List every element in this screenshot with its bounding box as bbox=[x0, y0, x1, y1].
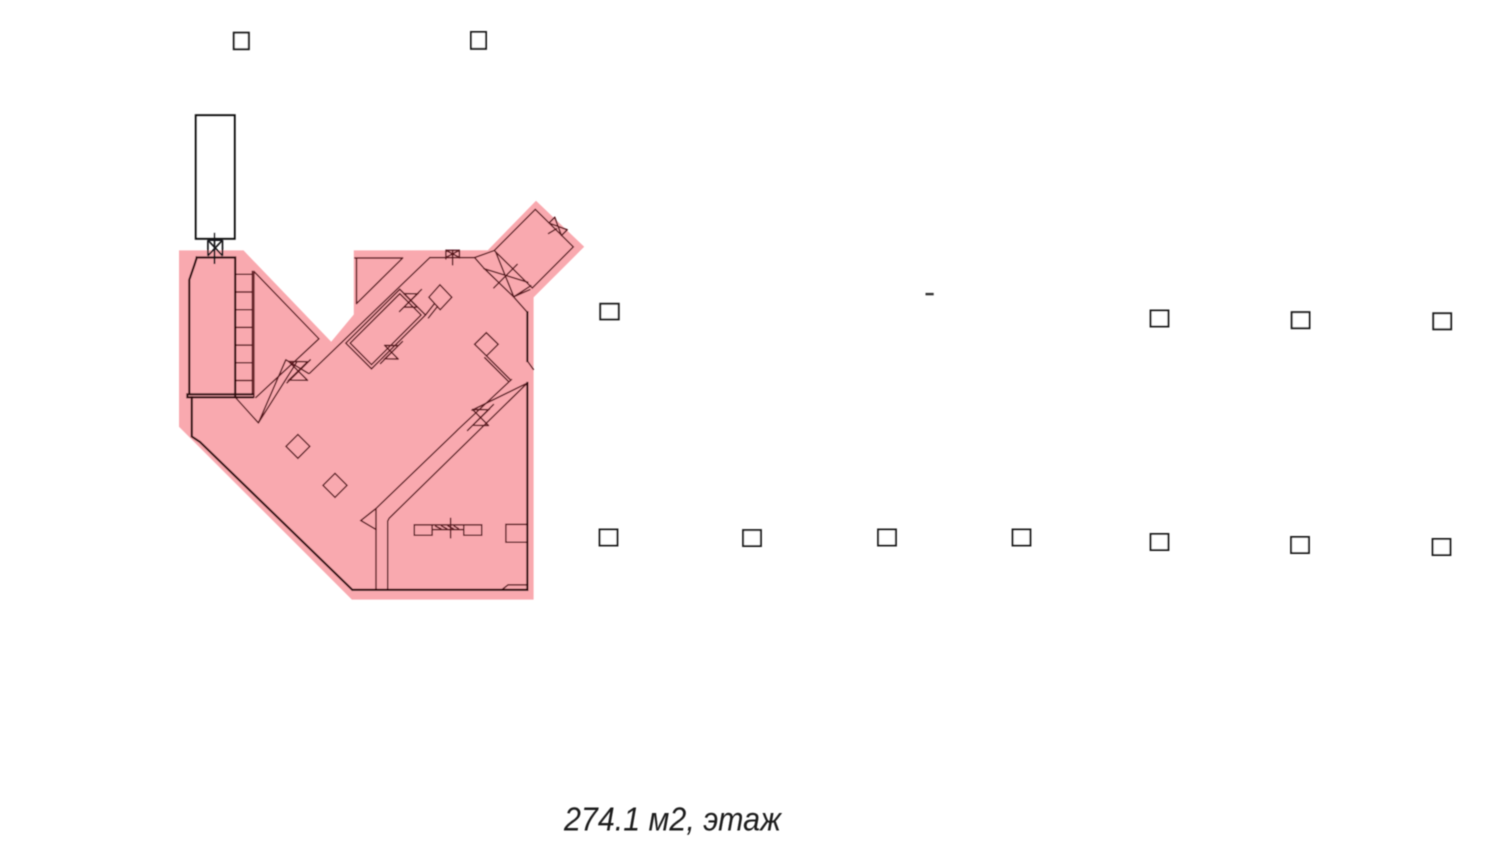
svg-text:274.1 м2, этаж: 274.1 м2, этаж bbox=[563, 801, 782, 838]
